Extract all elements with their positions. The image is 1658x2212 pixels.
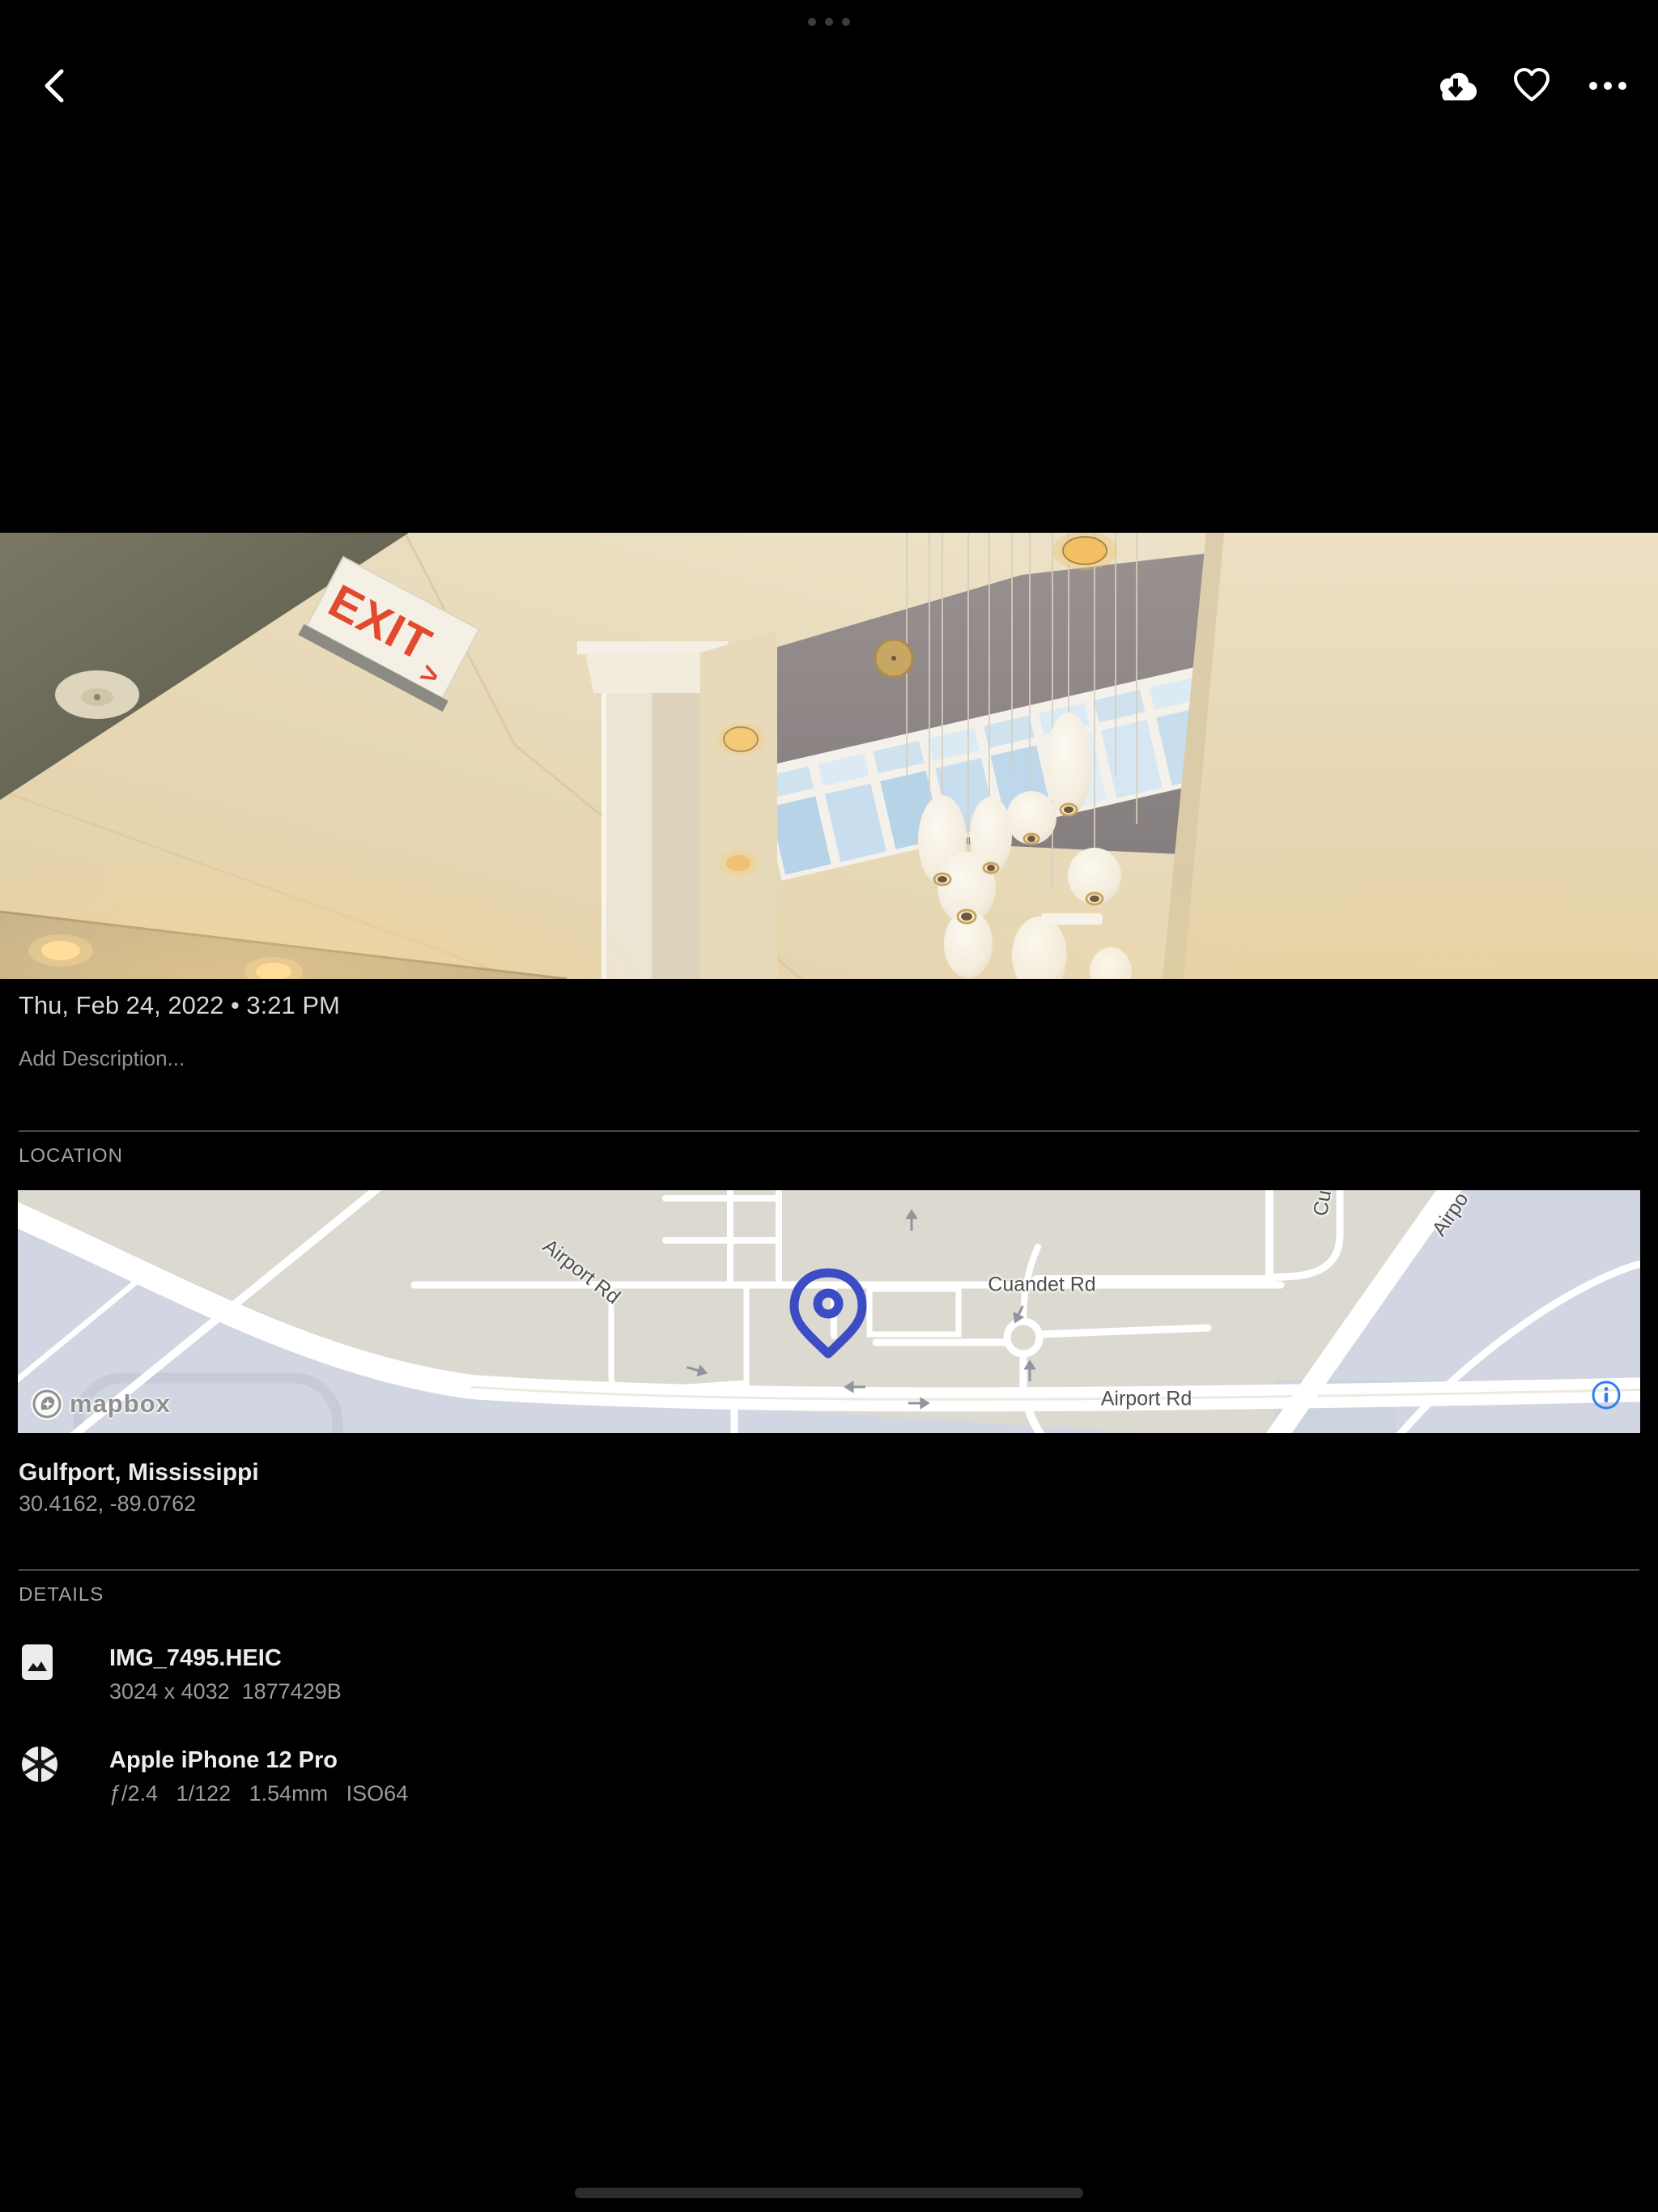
- download-button[interactable]: [1430, 60, 1482, 112]
- more-dots-icon: [1588, 81, 1627, 91]
- file-name: IMG_7495.HEIC: [109, 1645, 282, 1672]
- back-button[interactable]: [29, 60, 81, 112]
- mapbox-icon: [29, 1386, 65, 1422]
- chevron-left-icon: [39, 66, 71, 105]
- location-section-label: LOCATION: [19, 1145, 123, 1168]
- location-place: Gulfport, Mississippi: [19, 1459, 259, 1487]
- location-coordinates: 30.4162, -89.0762: [19, 1491, 196, 1516]
- photo-viewer[interactable]: EXIT >: [0, 533, 1658, 979]
- cloud-download-icon: [1433, 68, 1478, 104]
- multitask-indicator: [808, 18, 850, 26]
- divider: [19, 1130, 1639, 1132]
- more-button[interactable]: [1582, 60, 1634, 112]
- road-label: Airport Rd: [1101, 1388, 1192, 1411]
- image-icon: [21, 1644, 53, 1685]
- map-info-button[interactable]: [1590, 1379, 1622, 1414]
- favorite-button[interactable]: [1506, 60, 1558, 112]
- details-section-label: DETAILS: [19, 1584, 104, 1606]
- location-map[interactable]: Airport Rd Cuandet Rd Airport Rd Airpo C…: [18, 1190, 1640, 1433]
- aperture-icon: [21, 1746, 58, 1787]
- camera-model: Apple iPhone 12 Pro: [109, 1747, 338, 1774]
- photo-detail-screen: EXIT >: [0, 0, 1658, 2212]
- road-label: Cu: [1309, 1190, 1337, 1218]
- photo-image: EXIT >: [0, 533, 1658, 979]
- divider: [19, 1569, 1639, 1571]
- heart-icon: [1512, 68, 1551, 104]
- info-icon: [1590, 1379, 1622, 1411]
- home-indicator[interactable]: [575, 2188, 1083, 2198]
- mapbox-wordmark: mapbox: [70, 1389, 171, 1419]
- road-label: Cuandet Rd: [988, 1274, 1095, 1297]
- description-field[interactable]: Add Description...: [19, 1046, 185, 1071]
- mapbox-attribution[interactable]: mapbox: [29, 1386, 171, 1422]
- photo-date: Thu, Feb 24, 2022 • 3:21 PM: [19, 991, 340, 1020]
- file-meta: 3024 x 4032 1877429B: [109, 1679, 342, 1704]
- map-graphic: [18, 1190, 1640, 1433]
- camera-settings: ƒ/2.4 1/122 1.54mm ISO64: [109, 1781, 408, 1806]
